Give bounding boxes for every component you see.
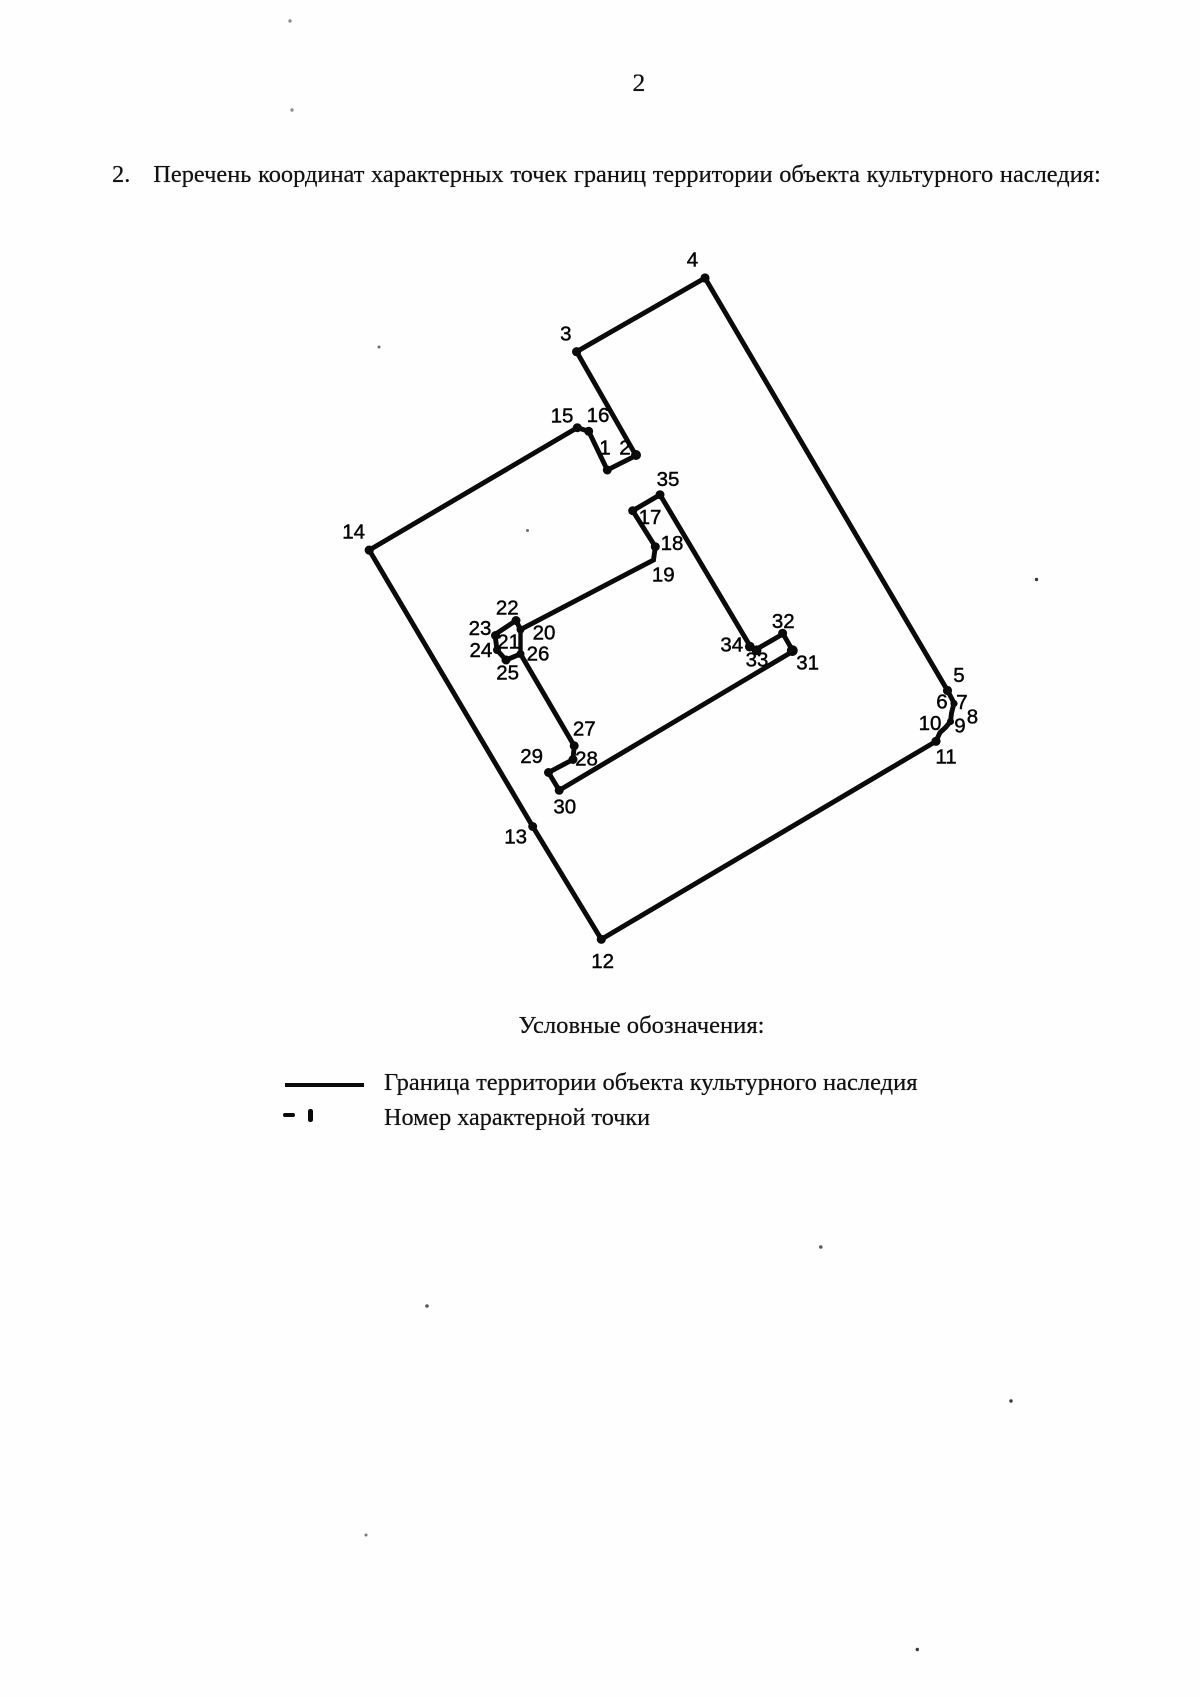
svg-text:32: 32 bbox=[772, 610, 795, 633]
svg-text:29: 29 bbox=[520, 745, 543, 768]
svg-text:25: 25 bbox=[496, 661, 519, 684]
svg-text:22: 22 bbox=[496, 597, 519, 620]
svg-text:35: 35 bbox=[657, 468, 680, 491]
svg-text:8: 8 bbox=[967, 705, 978, 728]
svg-text:14: 14 bbox=[342, 520, 365, 543]
svg-text:11: 11 bbox=[935, 745, 956, 768]
svg-text:30: 30 bbox=[553, 796, 576, 819]
svg-text:19: 19 bbox=[652, 563, 675, 586]
svg-text:16: 16 bbox=[587, 404, 610, 427]
svg-text:5: 5 bbox=[953, 664, 964, 687]
svg-text:10: 10 bbox=[919, 712, 942, 735]
svg-text:2: 2 bbox=[619, 436, 630, 459]
svg-text:18: 18 bbox=[661, 532, 684, 555]
svg-text:9: 9 bbox=[954, 714, 965, 737]
svg-text:17: 17 bbox=[639, 506, 662, 529]
svg-text:20: 20 bbox=[533, 621, 556, 644]
svg-text:6: 6 bbox=[936, 690, 947, 713]
svg-text:23: 23 bbox=[469, 617, 492, 640]
svg-text:28: 28 bbox=[575, 748, 598, 771]
svg-text:15: 15 bbox=[551, 405, 574, 428]
svg-text:31: 31 bbox=[796, 652, 819, 675]
svg-text:21: 21 bbox=[497, 631, 520, 654]
svg-text:1: 1 bbox=[599, 436, 610, 459]
svg-text:24: 24 bbox=[469, 639, 492, 662]
svg-text:3: 3 bbox=[560, 323, 571, 346]
svg-text:26: 26 bbox=[527, 643, 550, 666]
svg-text:12: 12 bbox=[591, 950, 614, 973]
svg-text:33: 33 bbox=[746, 649, 769, 672]
svg-text:13: 13 bbox=[504, 825, 527, 848]
svg-text:27: 27 bbox=[573, 718, 596, 741]
svg-text:4: 4 bbox=[687, 249, 698, 272]
svg-text:34: 34 bbox=[720, 633, 743, 656]
